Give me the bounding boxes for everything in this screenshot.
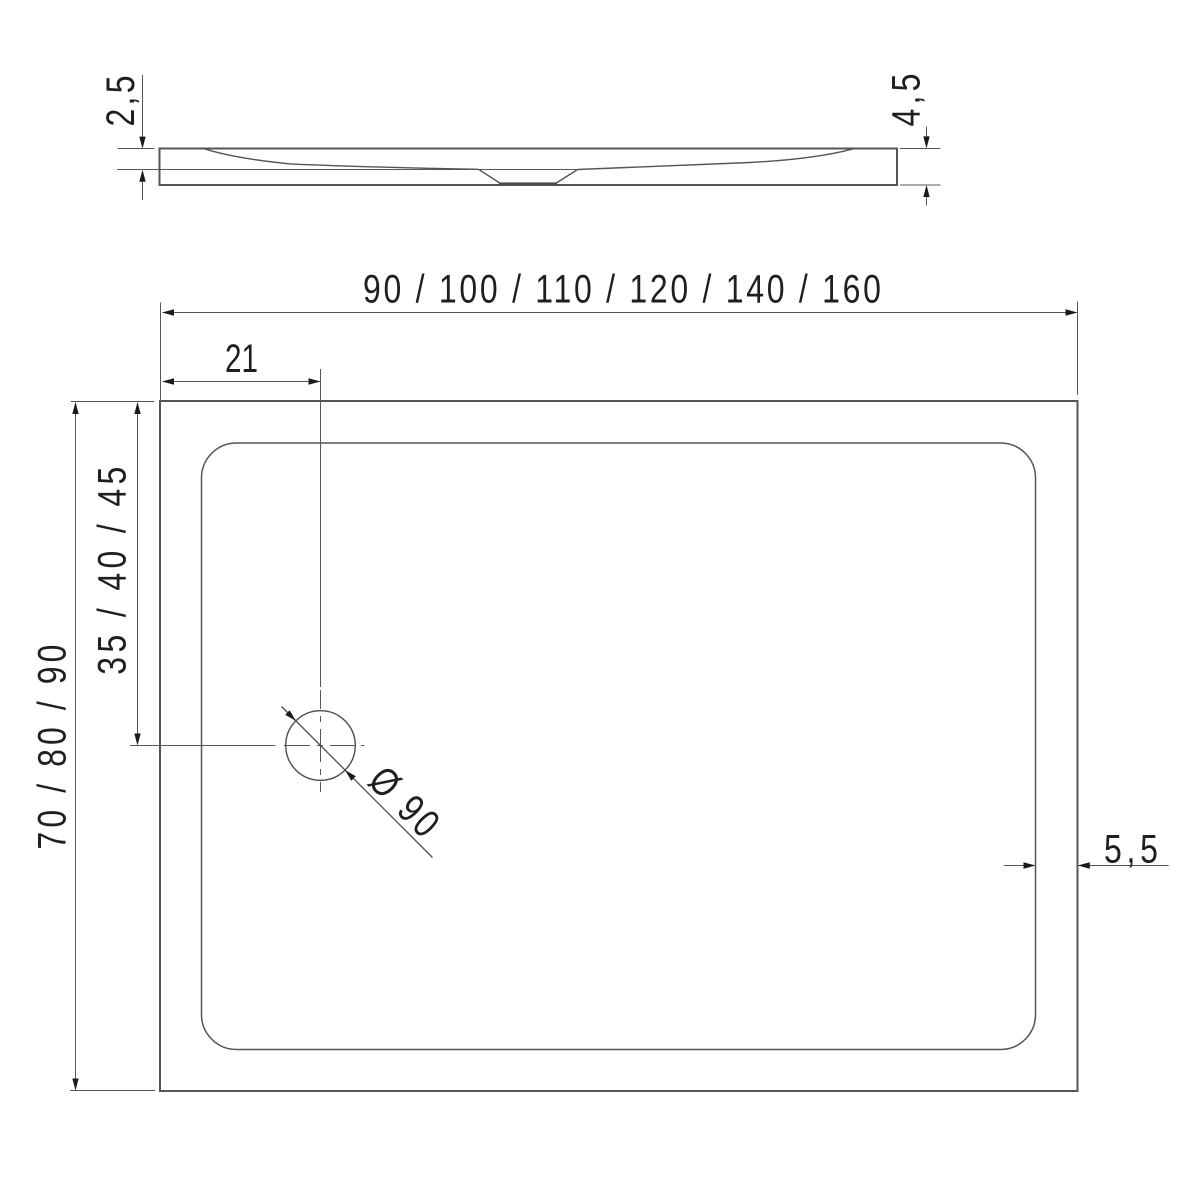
svg-text:90 / 100 / 110 / 120 / 140 / 1: 90 / 100 / 110 / 120 / 140 / 160 [363, 266, 881, 311]
svg-text:21: 21 [225, 336, 258, 381]
svg-text:4,5: 4,5 [883, 74, 928, 127]
svg-text:5,5: 5,5 [1104, 826, 1158, 871]
svg-text:2,5: 2,5 [98, 76, 143, 127]
